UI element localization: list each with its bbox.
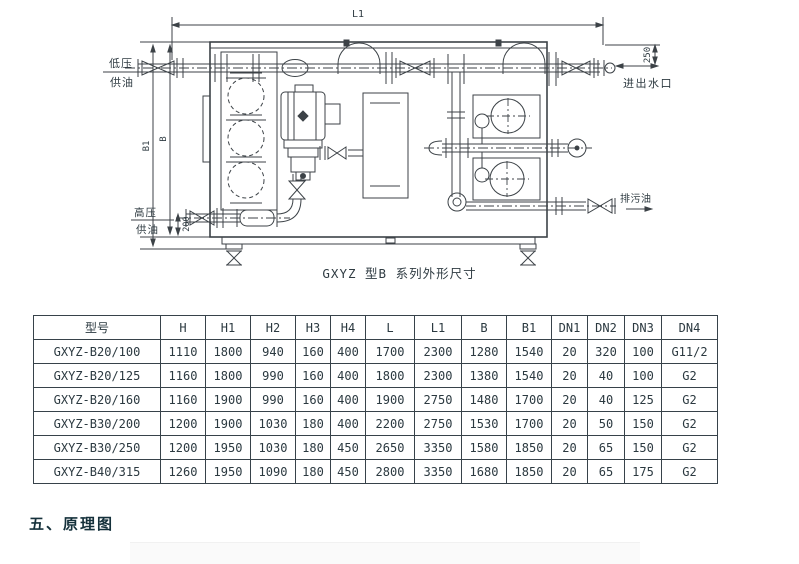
table-cell: 940 — [251, 340, 296, 364]
table-row: GXYZ-B30/2501200195010301804502650335015… — [34, 436, 718, 460]
table-cell: GXYZ-B20/100 — [34, 340, 161, 364]
section-heading: 五、原理图 — [29, 513, 114, 534]
column-header: H3 — [296, 316, 331, 340]
table-cell: 1030 — [251, 412, 296, 436]
outline-drawing: L1 250 B1 B 200 低压 供油 高压 供油 进出水口 排污油 — [0, 0, 799, 300]
column-header: H1 — [206, 316, 251, 340]
table-cell: 20 — [552, 364, 588, 388]
table-cell: 1160 — [161, 364, 206, 388]
table-row: GXYZ-B30/2001200190010301804002200275015… — [34, 412, 718, 436]
table-cell: G2 — [662, 364, 718, 388]
table-cell: 1540 — [507, 340, 552, 364]
table-cell: 1110 — [161, 340, 206, 364]
next-figure-edge — [130, 542, 640, 564]
column-header: L — [366, 316, 415, 340]
label-low-supply: 供油 — [110, 75, 134, 89]
table-cell: 1200 — [161, 436, 206, 460]
table-cell: 1800 — [206, 364, 251, 388]
table-cell: 2800 — [366, 460, 415, 484]
table-cell: 65 — [588, 460, 625, 484]
label-low-pressure: 低压 — [109, 57, 133, 70]
table-cell: 1700 — [507, 388, 552, 412]
table-cell: 1380 — [462, 364, 507, 388]
table-cell: 100 — [625, 364, 662, 388]
table-cell: 40 — [588, 364, 625, 388]
table-cell: 1850 — [507, 436, 552, 460]
table-cell: 1700 — [366, 340, 415, 364]
table-cell: 2650 — [366, 436, 415, 460]
table-cell: 1530 — [462, 412, 507, 436]
table-cell: 180 — [296, 460, 331, 484]
table-cell: 180 — [296, 412, 331, 436]
column-header: DN3 — [625, 316, 662, 340]
table-cell: GXYZ-B40/315 — [34, 460, 161, 484]
table-cell: 3350 — [415, 460, 462, 484]
table-cell: 450 — [331, 436, 366, 460]
table-cell: 1900 — [206, 412, 251, 436]
table-cell: 1950 — [206, 436, 251, 460]
table-cell: 1950 — [206, 460, 251, 484]
table-cell: 2200 — [366, 412, 415, 436]
table-cell: 20 — [552, 460, 588, 484]
dim-label-b1: B1 — [142, 141, 152, 152]
column-header: B1 — [507, 316, 552, 340]
table-cell: 1900 — [366, 388, 415, 412]
table-cell: 65 — [588, 436, 625, 460]
table-cell: 1480 — [462, 388, 507, 412]
table-cell: 40 — [588, 388, 625, 412]
column-header: DN1 — [552, 316, 588, 340]
table-cell: 2300 — [415, 340, 462, 364]
table-cell: 1540 — [507, 364, 552, 388]
table-cell: 3350 — [415, 436, 462, 460]
dim-label-l1: L1 — [352, 9, 364, 20]
label-high-supply: 供油 — [136, 223, 159, 236]
table-cell: 400 — [331, 412, 366, 436]
table-cell: 160 — [296, 388, 331, 412]
dim-label-200: 200 — [182, 216, 192, 231]
table-cell: 1800 — [366, 364, 415, 388]
dim-label-b: B — [159, 136, 169, 141]
table-cell: 20 — [552, 340, 588, 364]
table-cell: 1090 — [251, 460, 296, 484]
table-cell: 1850 — [507, 460, 552, 484]
table-cell: 1030 — [251, 436, 296, 460]
table-cell: 400 — [331, 340, 366, 364]
table-cell: 1700 — [507, 412, 552, 436]
table-cell: G2 — [662, 388, 718, 412]
table-cell: 400 — [331, 364, 366, 388]
table-cell: 990 — [251, 364, 296, 388]
table-cell: 20 — [552, 388, 588, 412]
table-cell: 20 — [552, 436, 588, 460]
column-header: H4 — [331, 316, 366, 340]
table-cell: 1260 — [161, 460, 206, 484]
column-header: 型号 — [34, 316, 161, 340]
table-cell: GXYZ-B30/200 — [34, 412, 161, 436]
column-header: L1 — [415, 316, 462, 340]
table-cell: 100 — [625, 340, 662, 364]
table-cell: 160 — [296, 364, 331, 388]
drawing-caption: GXYZ 型B 系列外形尺寸 — [0, 263, 799, 282]
table-cell: 160 — [296, 340, 331, 364]
table-header-row: 型号HH1H2H3H4LL1BB1DN1DN2DN3DN4 — [34, 316, 718, 340]
column-header: DN2 — [588, 316, 625, 340]
table-cell: 2750 — [415, 412, 462, 436]
column-header: B — [462, 316, 507, 340]
table-row: GXYZ-B20/1251160180099016040018002300138… — [34, 364, 718, 388]
table-cell: 50 — [588, 412, 625, 436]
table-cell: GXYZ-B30/250 — [34, 436, 161, 460]
table-cell: 150 — [625, 412, 662, 436]
table-cell: 1680 — [462, 460, 507, 484]
table-cell: GXYZ-B20/125 — [34, 364, 161, 388]
table-cell: 20 — [552, 412, 588, 436]
table-row: GXYZ-B20/1601160190099016040019002750148… — [34, 388, 718, 412]
label-drain-oil: 排污油 — [620, 192, 652, 205]
table-cell: 2300 — [415, 364, 462, 388]
table-cell: 125 — [625, 388, 662, 412]
table-cell: 320 — [588, 340, 625, 364]
table-cell: 175 — [625, 460, 662, 484]
table-row: GXYZ-B40/3151260195010901804502800335016… — [34, 460, 718, 484]
table-cell: G11/2 — [662, 340, 718, 364]
spec-table: 型号HH1H2H3H4LL1BB1DN1DN2DN3DN4 GXYZ-B20/1… — [33, 315, 718, 484]
column-header: H2 — [251, 316, 296, 340]
table-cell: 1800 — [206, 340, 251, 364]
table-cell: G2 — [662, 436, 718, 460]
table-cell: 990 — [251, 388, 296, 412]
table-cell: G2 — [662, 460, 718, 484]
column-header: H — [161, 316, 206, 340]
table-cell: 1160 — [161, 388, 206, 412]
table-cell: G2 — [662, 412, 718, 436]
table-cell: 1280 — [462, 340, 507, 364]
dim-label-250: 250 — [643, 47, 653, 63]
column-header: DN4 — [662, 316, 718, 340]
label-water-port: 进出水口 — [623, 76, 673, 90]
table-row: GXYZ-B20/1001110180094016040017002300128… — [34, 340, 718, 364]
table-cell: 180 — [296, 436, 331, 460]
table-cell: 1900 — [206, 388, 251, 412]
table-cell: GXYZ-B20/160 — [34, 388, 161, 412]
table-cell: 150 — [625, 436, 662, 460]
label-high-pressure: 高压 — [134, 206, 157, 219]
table-cell: 1580 — [462, 436, 507, 460]
table-cell: 450 — [331, 460, 366, 484]
table-cell: 2750 — [415, 388, 462, 412]
table-cell: 400 — [331, 388, 366, 412]
table-cell: 1200 — [161, 412, 206, 436]
